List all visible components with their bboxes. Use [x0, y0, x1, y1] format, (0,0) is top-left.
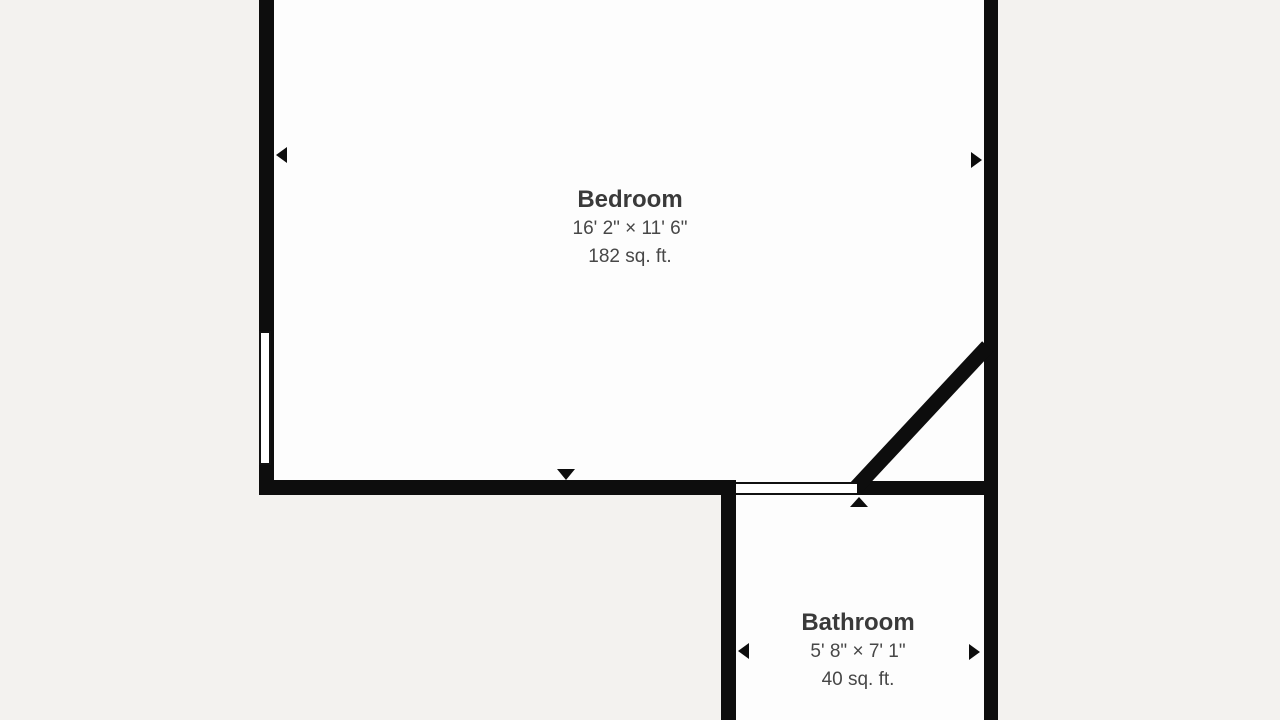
bedroom-label: Bedroom 16' 2" × 11' 6" 182 sq. ft.	[573, 185, 688, 271]
floor-plan-canvas: Bedroom 16' 2" × 11' 6" 182 sq. ft. Bath…	[0, 0, 1280, 720]
bedroom-dimensions: 16' 2" × 11' 6"	[573, 215, 688, 243]
bedroom-right-wall-arrow-icon	[971, 152, 982, 168]
bathroom-right-wall-arrow-icon	[969, 644, 980, 660]
bedroom-bottom-wall	[259, 480, 736, 495]
right-exterior-wall	[984, 0, 998, 720]
bathroom-door-opening	[736, 482, 857, 495]
bedroom-area: 182 sq. ft.	[573, 243, 688, 271]
bathroom-door-arrow-icon	[850, 497, 868, 507]
bathroom-label: Bathroom 5' 8" × 7' 1" 40 sq. ft.	[801, 608, 914, 694]
bedroom-name: Bedroom	[573, 185, 688, 215]
bedroom-bottom-wall-arrow-icon	[557, 469, 575, 480]
bathroom-name: Bathroom	[801, 608, 914, 638]
bathroom-top-wall	[856, 481, 998, 495]
bathroom-area: 40 sq. ft.	[801, 666, 914, 694]
bathroom-left-wall	[721, 480, 736, 720]
bathroom-left-wall-arrow-icon	[738, 643, 749, 659]
bedroom-window	[259, 331, 271, 465]
bathroom-dimensions: 5' 8" × 7' 1"	[801, 638, 914, 666]
bedroom-left-wall-arrow-icon	[276, 147, 287, 163]
